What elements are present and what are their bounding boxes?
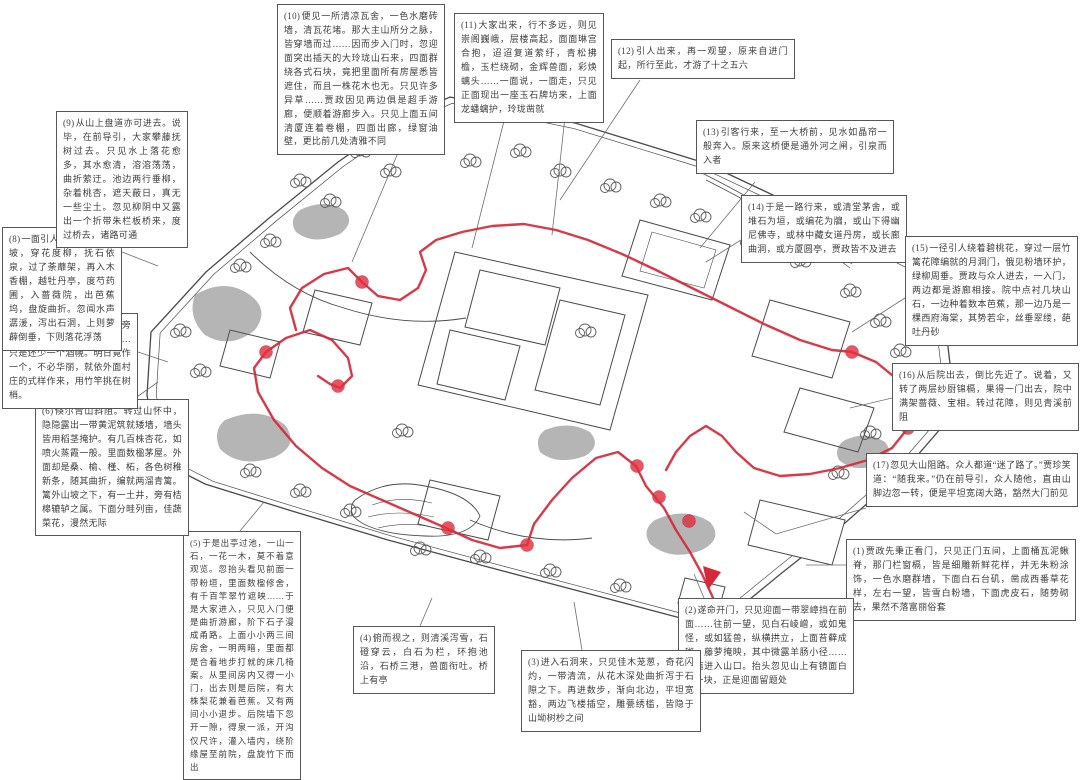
- annotation-text: 引人出来，再一观望，原来自进门起，所行至此，才游了十之五六: [618, 46, 788, 70]
- route-node: [260, 346, 273, 359]
- route-node: [683, 515, 696, 528]
- route-node: [442, 522, 455, 535]
- annotation-note-2: (2)遂命开门，只见迎面一带翠嶂挡在前面……往前一望，见白石崚嶒，或如鬼怪，或如…: [678, 598, 854, 694]
- annotation-text: 贾政先秉正看门，只见正门五间，上面桶瓦泥鳅脊，那门栏窗槅，皆是细雕新鲜花样，并无…: [853, 546, 1069, 612]
- annotation-number: (9): [63, 118, 74, 128]
- annotation-text: 一径引人绕着碧桃花，穿过一层竹篱花障编就的月洞门，俄见粉墙环护，绿柳周垂。贾政与…: [912, 243, 1071, 337]
- annotation-number: (12): [618, 46, 634, 56]
- route-node: [653, 491, 666, 504]
- route-node: [356, 276, 369, 289]
- annotation-text: 从后院出去，倒比先近了。说着，又转了两层纱厨锦槅，果得一门出去，院中满架蔷薇、宝…: [899, 370, 1072, 422]
- annotation-note-4: (4)俯而视之，则清溪泻雪，石磴穿云，白石为栏，环抱池沿，石桥三港，兽面衔吐。桥…: [353, 626, 495, 694]
- building-cluster-central: [418, 220, 730, 430]
- annotation-number: (17): [873, 460, 889, 470]
- annotation-note-14: (14)于是一路行来，或清堂茅舍，或堆石为垣，或编花为牖，或山下得幽尼佛寺，或林…: [741, 195, 907, 263]
- annotation-text: 遂命开门，只见迎面一带翠嶂挡在前面……往前一望，见白石崚嶒，或如鬼怪，或如猛兽，…: [685, 605, 847, 685]
- annotation-text: 便见一所清凉瓦舍，一色水磨砖墙，清瓦花堵。那大主山所分之脉，皆穿墙而过……因而步…: [284, 11, 438, 146]
- annotation-text: 引客行来，至一大桥前，见水如晶帘一般奔入。原来这桥便是通外河之闸，引泉而入者: [703, 127, 887, 165]
- annotation-number: (10): [284, 11, 300, 21]
- annotation-note-9: (9)从山上盘道亦可进去。说毕，在前导引，大家攀藤抚树过去。只见水上落花愈多，其…: [56, 111, 188, 248]
- annotation-note-11: (11)大家出来，行不多远，则见崇阁巍峨，层楼高起，面面琳宫合抱，迢迢复道萦纡，…: [454, 13, 604, 123]
- annotation-text: 于是出亭过池，一山一石，一花一木，莫不着意观览。忽抬头看见前面一带粉垣，里面数楹…: [190, 538, 294, 772]
- annotation-number: (15): [912, 243, 928, 253]
- annotation-number: (13): [703, 127, 719, 137]
- annotation-number: (11): [461, 20, 477, 30]
- route-node: [521, 539, 534, 552]
- annotation-note-13: (13)引客行来，至一大桥前，见水如晶帘一般奔入。原来这桥便是通外河之闸，引泉而…: [696, 120, 894, 174]
- annotation-note-16: (16)从后院出去，倒比先近了。说着，又转了两层纱厨锦槅，果得一门出去，院中满架…: [892, 363, 1079, 431]
- annotation-text: 从山上盘道亦可进去。说毕，在前导引，大家攀藤抚树过去。只见水上落花愈多，其水愈清…: [63, 118, 181, 240]
- annotation-note-10: (10)便见一所清凉瓦舍，一色水磨砖墙，清瓦花堵。那大主山所分之脉，皆穿墙而过……: [277, 4, 445, 155]
- annotation-text: 一面引人出来，转过山坡，穿花度柳，抚石依泉，过了荼蘼架，再入木香棚，越牡丹亭，度…: [9, 234, 115, 342]
- annotation-note-3: (3)进入石洞来，只见佳木茏葱，奇花闪灼，一带清流，从花木深处曲折泻于石隙之下。…: [521, 650, 701, 732]
- annotation-number: (16): [899, 370, 915, 380]
- annotation-number: (1): [853, 546, 864, 556]
- annotation-text: 忽见大山阻路。众人都道“迷了路了。”贾珍笑道：“随我来。”仍在前导引，众人随他，…: [873, 460, 1071, 498]
- annotation-note-5: (5)于是出亭过池，一山一石，一花一木，莫不着意观览。忽抬头看见前面一带粉垣，里…: [183, 531, 301, 780]
- annotation-number: (8): [9, 234, 20, 244]
- garden-tour-map-page: (1)贾政先秉正看门，只见正门五间，上面桶瓦泥鳅脊，那门栏窗槅，皆是细雕新鲜花样…: [0, 0, 1080, 744]
- route-node: [332, 380, 345, 393]
- annotation-number: (3): [528, 657, 539, 667]
- annotation-text: 进入石洞来，只见佳木茏葱，奇花闪灼，一带清流，从花木深处曲折泻于石隙之下。再进数…: [528, 657, 694, 723]
- annotation-number: (14): [748, 202, 764, 212]
- annotation-note-1: (1)贾政先秉正看门，只见正门五间，上面桶瓦泥鳅脊，那门栏窗槅，皆是细雕新鲜花样…: [846, 539, 1076, 621]
- route-node: [631, 460, 644, 473]
- annotation-number: (4): [360, 633, 371, 643]
- annotation-note-17: (17)忽见大山阻路。众人都道“迷了路了。”贾珍笑道：“随我来。”仍在前导引，众…: [866, 453, 1078, 507]
- annotation-number: (2): [685, 605, 696, 615]
- annotation-text: 于是一路行来，或清堂茅舍，或堆石为垣，或编花为牖，或山下得幽尼佛寺，或林中藏女道…: [748, 202, 900, 254]
- annotation-text: 大家出来，行不多远，则见崇阁巍峨，层楼高起，面面琳宫合抱，迢迢复道萦纡，青松拂檐…: [461, 20, 597, 114]
- annotation-note-15: (15)一径引人绕着碧桃花，穿过一层竹篱花障编就的月洞门，俄见粉墙环护，绿柳周垂…: [905, 236, 1078, 346]
- annotation-text: 倏尔青山斜阻。转过山怀中，隐隐露出一带黄泥筑就矮墙，墙头皆用稻茎掩护。有几百株杏…: [42, 406, 182, 528]
- annotation-note-6: (6)倏尔青山斜阻。转过山怀中，隐隐露出一带黄泥筑就矮墙，墙头皆用稻茎掩护。有几…: [35, 399, 189, 536]
- annotation-text: 俯而视之，则清溪泻雪，石磴穿云，白石为栏，环抱池沿，石桥三港，兽面衔吐。桥上有亭: [360, 633, 488, 685]
- route-node: [846, 346, 859, 359]
- annotation-note-12: (12)引人出来，再一观望，原来自进门起，所行至此，才游了十之五六: [611, 39, 795, 79]
- annotation-number: (5): [190, 538, 201, 548]
